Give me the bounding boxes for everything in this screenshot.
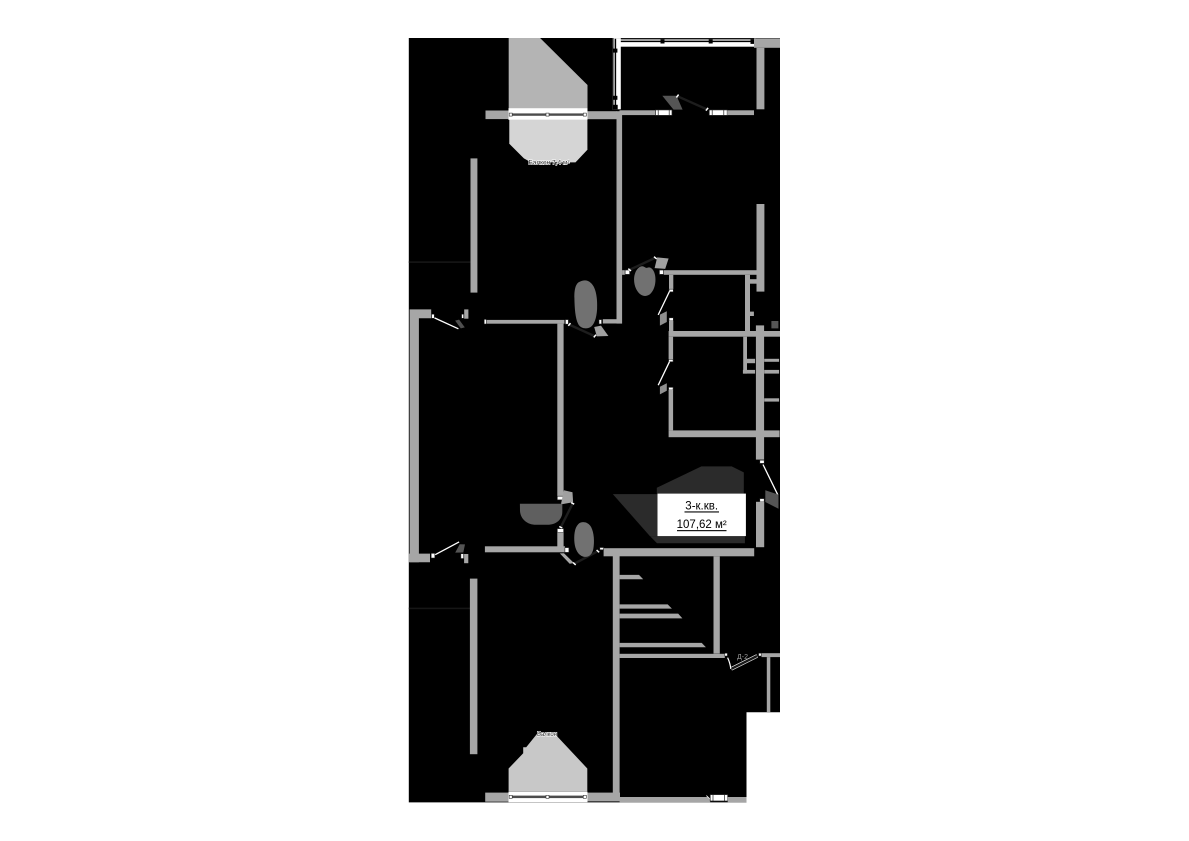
svg-text:Д-2: Д-2 (737, 654, 748, 661)
svg-text:Балкон 7,4 м²: Балкон 7,4 м² (528, 160, 570, 167)
svg-text:3-к.кв.: 3-к.кв. (685, 501, 718, 513)
svg-text:Балкон: Балкон (537, 732, 557, 738)
svg-text:107,62 м²: 107,62 м² (677, 519, 727, 531)
